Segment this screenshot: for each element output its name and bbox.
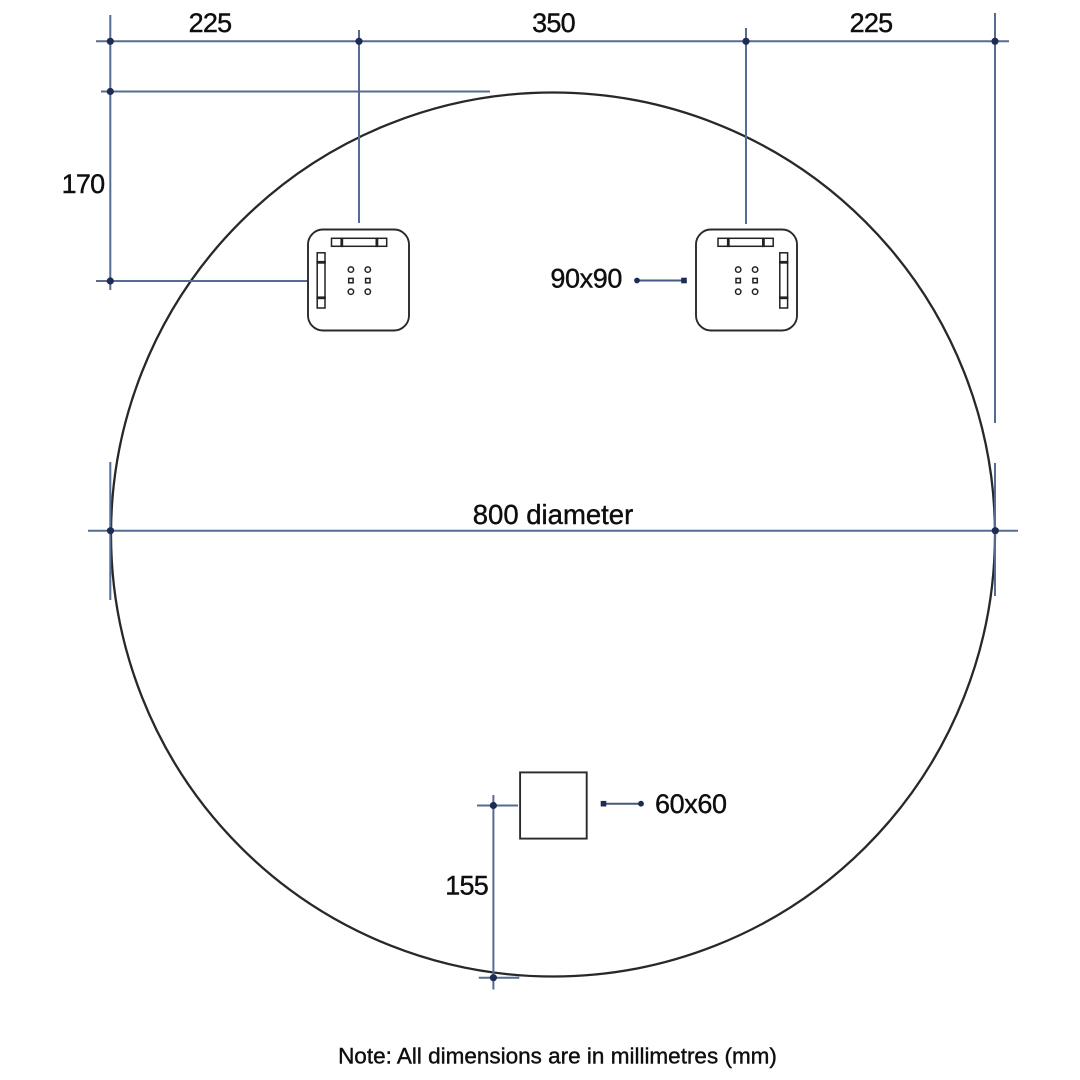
- svg-text:225: 225: [850, 8, 893, 38]
- svg-text:90x90: 90x90: [550, 264, 622, 294]
- svg-text:225: 225: [189, 8, 232, 38]
- svg-text:350: 350: [532, 8, 575, 38]
- svg-text:60x60: 60x60: [655, 789, 727, 819]
- svg-text:170: 170: [62, 169, 105, 199]
- svg-text:800 diameter: 800 diameter: [473, 499, 634, 530]
- svg-text:Note: All dimensions are in mi: Note: All dimensions are in millimetres …: [338, 1044, 777, 1069]
- svg-text:155: 155: [445, 871, 488, 901]
